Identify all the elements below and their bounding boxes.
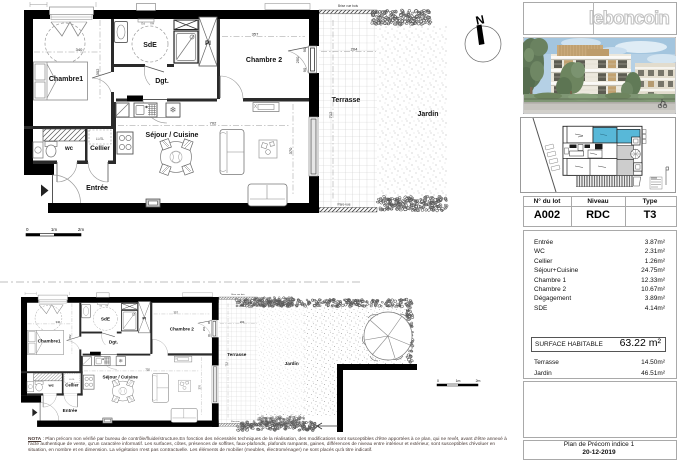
svg-text:LL/SL: LL/SL bbox=[96, 137, 105, 141]
svg-text:702: 702 bbox=[210, 121, 217, 126]
svg-text:250: 250 bbox=[295, 56, 300, 63]
svg-text:Gd: Gd bbox=[141, 22, 145, 26]
svg-text:1m: 1m bbox=[456, 379, 461, 383]
svg-text:2m: 2m bbox=[78, 227, 85, 232]
svg-text:Chambre 2: Chambre 2 bbox=[246, 57, 282, 64]
svg-text:1m: 1m bbox=[51, 227, 58, 232]
svg-text:340: 340 bbox=[76, 47, 83, 52]
svg-text:0: 0 bbox=[26, 227, 29, 232]
svg-text:Dgt.: Dgt. bbox=[155, 78, 169, 85]
svg-text:712: 712 bbox=[328, 111, 333, 118]
svg-text:wc: wc bbox=[64, 146, 74, 152]
svg-text:Entrée: Entrée bbox=[86, 185, 108, 192]
svg-text:204: 204 bbox=[351, 47, 358, 52]
svg-text:0: 0 bbox=[437, 379, 439, 383]
svg-text:2m: 2m bbox=[476, 379, 481, 383]
svg-text:Cellier: Cellier bbox=[90, 145, 110, 152]
svg-text:302: 302 bbox=[95, 68, 100, 75]
svg-text:Chambre1: Chambre1 bbox=[49, 76, 83, 83]
svg-text:90: 90 bbox=[302, 47, 307, 52]
svg-text:357: 357 bbox=[252, 32, 259, 37]
svg-text:Jardin: Jardin bbox=[417, 111, 438, 118]
svg-text:370: 370 bbox=[288, 147, 293, 154]
svg-text:PI: PI bbox=[205, 41, 211, 47]
svg-text:SdE: SdE bbox=[143, 42, 157, 49]
svg-text:Séjour / Cuisine: Séjour / Cuisine bbox=[146, 132, 199, 139]
svg-text:Brise vue bois: Brise vue bois bbox=[338, 4, 358, 8]
svg-text:VH: VH bbox=[150, 22, 154, 26]
svg-text:90: 90 bbox=[302, 67, 307, 72]
svg-text:Pare-vue: Pare-vue bbox=[338, 203, 351, 207]
svg-text:❄: ❄ bbox=[170, 106, 177, 115]
svg-text:Terrasse: Terrasse bbox=[332, 97, 361, 104]
